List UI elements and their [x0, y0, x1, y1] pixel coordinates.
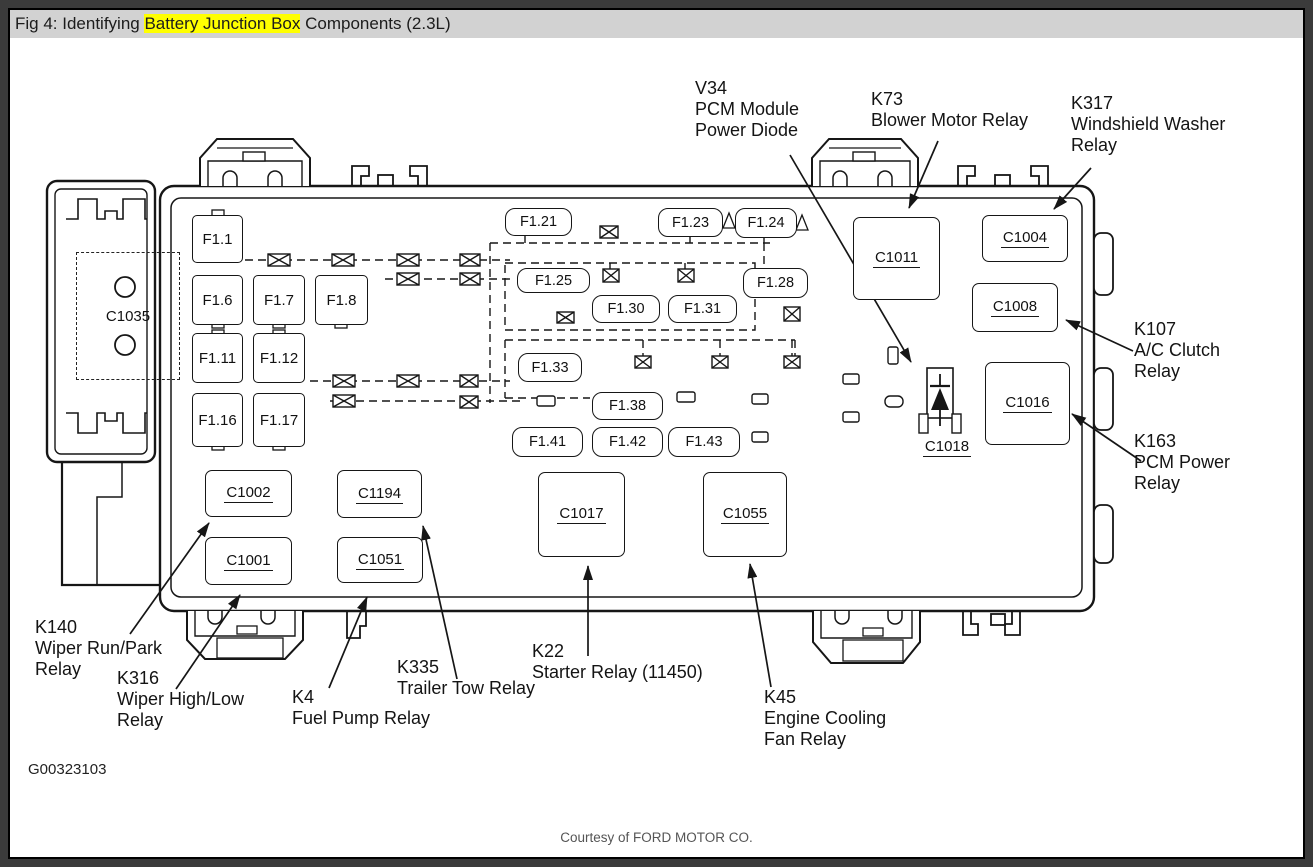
figure-title-bar: Fig 4: Identifying Battery Junction Box …	[10, 10, 1303, 38]
callout-k22: K22Starter Relay (11450)	[532, 641, 703, 683]
connector-c1035-label: C1035	[106, 308, 150, 325]
callout-v34: V34PCM ModulePower Diode	[695, 78, 799, 141]
fuse-f1-12: F1.12	[253, 333, 305, 383]
fuse-f1-38: F1.38	[592, 392, 663, 420]
connector-c1055: C1055	[703, 472, 787, 557]
callout-k335: K335Trailer Tow Relay	[397, 657, 535, 699]
courtesy-line: Courtesy of FORD MOTOR CO.	[8, 830, 1305, 845]
fuse-f1-16: F1.16	[192, 393, 243, 447]
figure-canvas: Fig 4: Identifying Battery Junction Box …	[8, 8, 1305, 859]
connector-c1011-label: C1011	[873, 249, 920, 268]
connector-c1016: C1016	[985, 362, 1070, 445]
connector-c1002-label: C1002	[224, 484, 272, 503]
connector-c1017: C1017	[538, 472, 625, 557]
connector-c1035: C1035	[76, 252, 180, 380]
fuse-f1-42: F1.42	[592, 427, 663, 457]
fuse-f1-25: F1.25	[517, 268, 590, 293]
fuse-f1-23: F1.23	[658, 208, 723, 237]
fuse-f1-11: F1.11	[192, 333, 243, 383]
fuse-f1-41: F1.41	[512, 427, 583, 457]
title-suffix: Components (2.3L)	[300, 14, 450, 33]
connector-c1051: C1051	[337, 537, 423, 583]
connector-c1004-label: C1004	[1001, 229, 1049, 248]
callout-k317: K317Windshield WasherRelay	[1071, 93, 1225, 156]
callout-k45: K45Engine CoolingFan Relay	[764, 687, 886, 750]
connector-c1194-label: C1194	[356, 485, 403, 504]
connector-c1001-label: C1001	[224, 552, 272, 571]
fuse-f1-28: F1.28	[743, 268, 808, 298]
fuse-f1-33: F1.33	[518, 353, 582, 382]
fuse-f1-6: F1.6	[192, 275, 243, 325]
connector-c1051-label: C1051	[356, 551, 404, 570]
fuse-f1-7: F1.7	[253, 275, 305, 325]
callout-k316: K316Wiper High/LowRelay	[117, 668, 244, 731]
connector-c1017-label: C1017	[557, 505, 605, 524]
fuse-f1-24: F1.24	[735, 208, 797, 238]
connector-c1016-label: C1016	[1003, 394, 1051, 413]
title-highlighted-text: Battery Junction Box	[144, 14, 300, 33]
fuse-f1-8: F1.8	[315, 275, 368, 325]
fuse-f1-31: F1.31	[668, 295, 737, 323]
figure-id: G00323103	[28, 761, 106, 778]
connector-c1004: C1004	[982, 215, 1068, 262]
callout-k107: K107A/C ClutchRelay	[1134, 319, 1220, 382]
connector-c1011: C1011	[853, 217, 940, 300]
fuse-f1-43: F1.43	[668, 427, 740, 457]
connector-c1194: C1194	[337, 470, 422, 518]
connector-c1008: C1008	[972, 283, 1058, 332]
connector-c1008-label: C1008	[991, 298, 1039, 317]
title-prefix: Fig 4: Identifying	[15, 14, 144, 33]
connector-c1001: C1001	[205, 537, 292, 585]
callout-k73: K73Blower Motor Relay	[871, 89, 1028, 131]
screenshot-frame: Fig 4: Identifying Battery Junction Box …	[0, 0, 1313, 867]
fuse-f1-17: F1.17	[253, 393, 305, 447]
fuse-f1-1: F1.1	[192, 215, 243, 263]
connector-c1055-label: C1055	[721, 505, 769, 524]
fuse-f1-30: F1.30	[592, 295, 660, 323]
fuse-f1-21: F1.21	[505, 208, 572, 236]
callout-k163: K163PCM PowerRelay	[1134, 431, 1230, 494]
connector-c1002: C1002	[205, 470, 292, 517]
connector-c1018-label: C1018	[920, 438, 974, 456]
